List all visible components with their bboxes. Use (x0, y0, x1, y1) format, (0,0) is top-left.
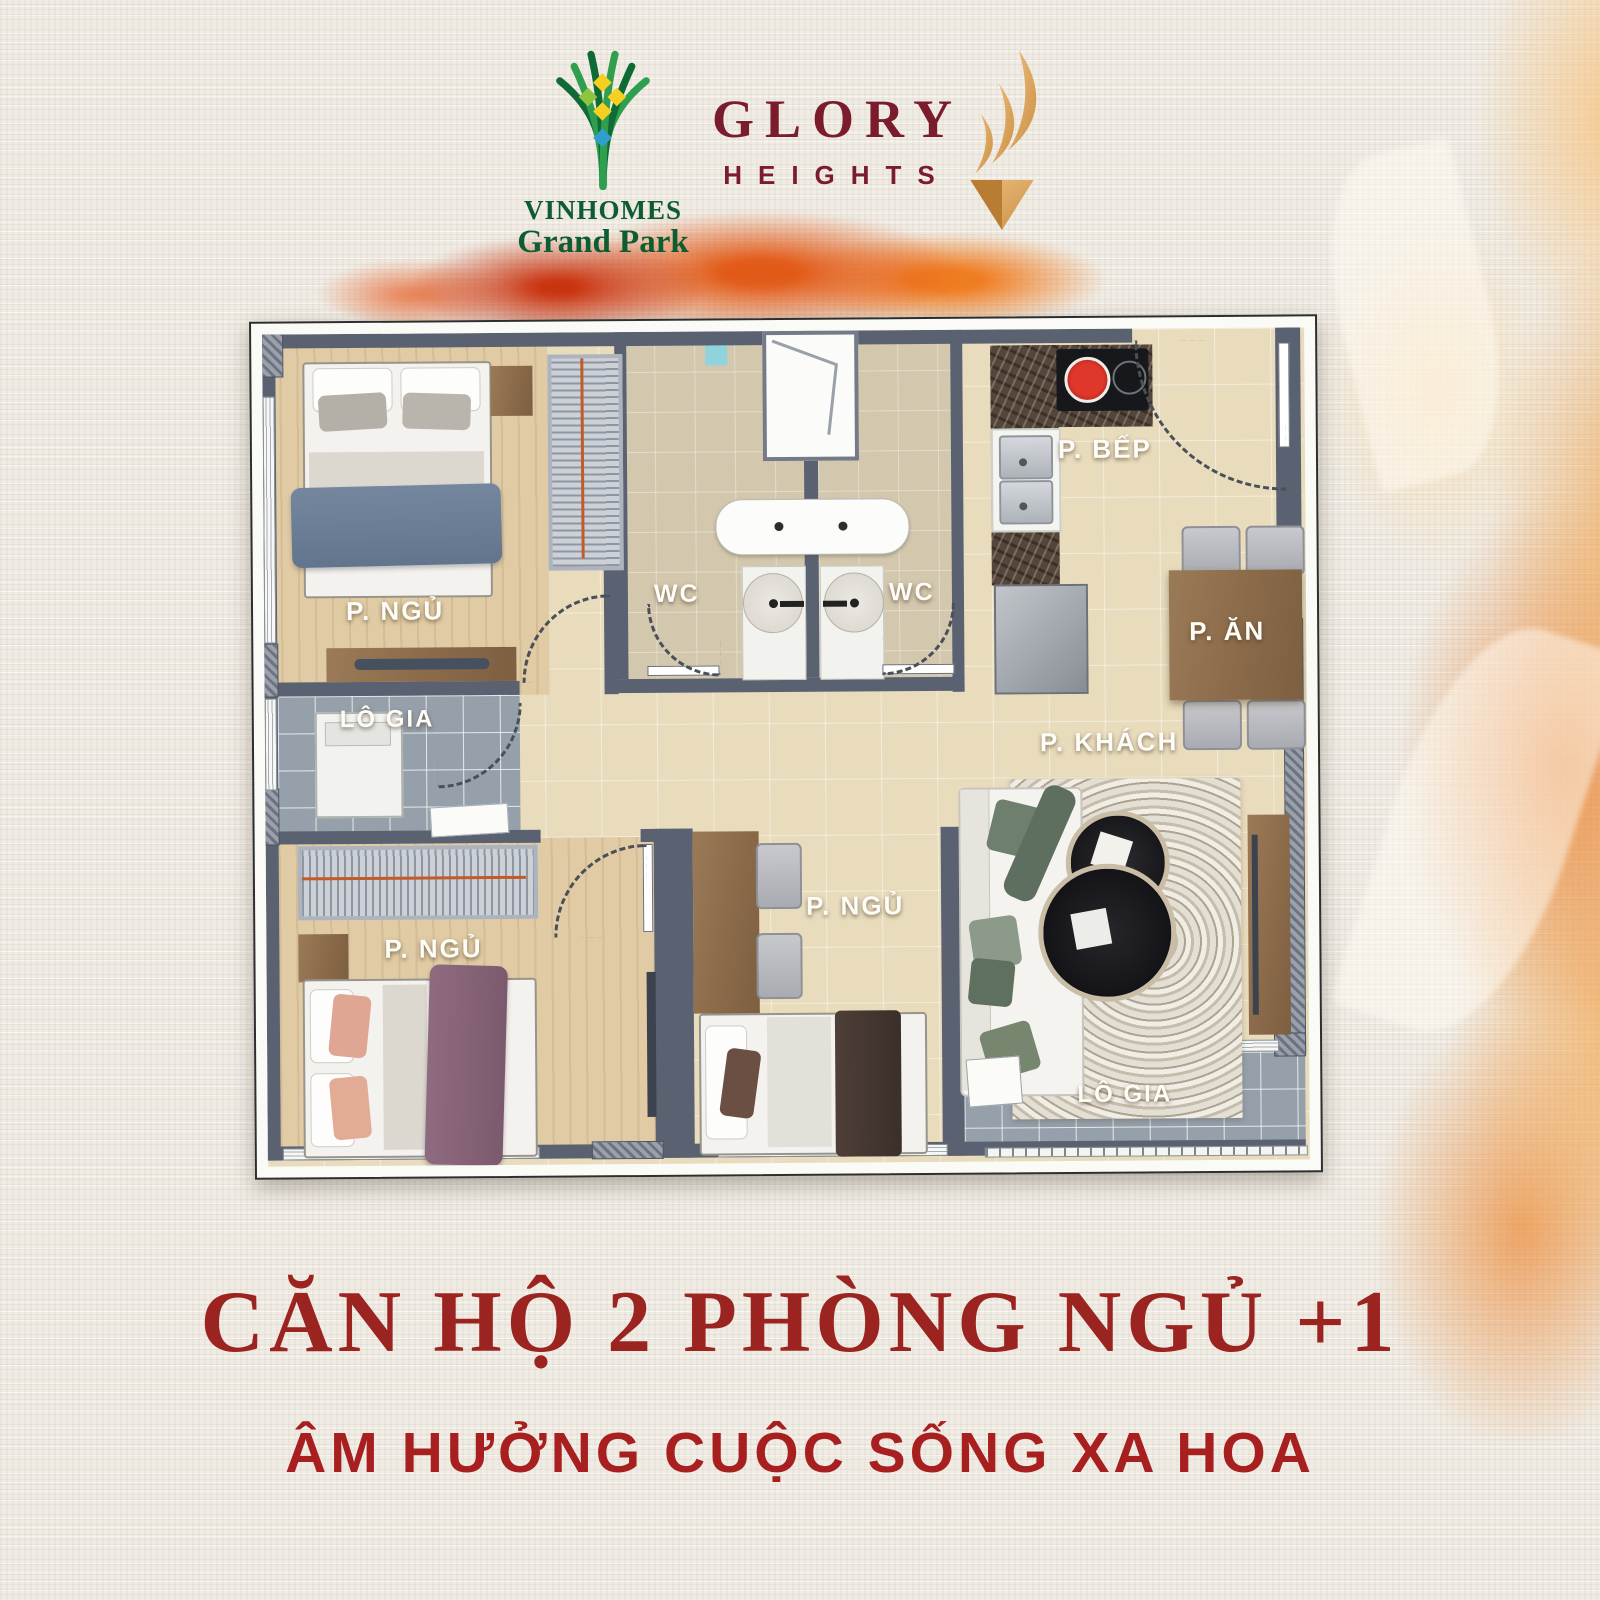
window (263, 397, 277, 644)
desk-chair (756, 933, 802, 999)
pillow (328, 993, 372, 1058)
kitchen-sink (991, 428, 1062, 532)
heights-wordmark: HEIGHTS (712, 160, 962, 191)
shower-door-icon (766, 335, 847, 450)
tv-console (1247, 814, 1291, 1034)
dining-chair (1247, 699, 1306, 749)
headline: CĂN HỘ 2 PHÒNG NGỦ +1 (0, 1272, 1600, 1373)
pillow (329, 1075, 373, 1140)
dining-chair (1245, 525, 1304, 575)
partition-wall (654, 829, 695, 1158)
pillow (318, 392, 388, 432)
nightstand (490, 366, 532, 416)
blanket (424, 964, 508, 1166)
dining-chair (1181, 526, 1240, 576)
room-label: P. NGỦ (806, 890, 904, 922)
wardrobe (547, 354, 624, 571)
floorplan: P. NGỦ WC WC P. BẾP (262, 327, 1310, 1166)
tv-panel (647, 972, 657, 1117)
blanket (835, 1010, 902, 1156)
wardrobe (298, 845, 539, 921)
pillow (402, 392, 471, 430)
loggia-rail (265, 699, 278, 791)
room-label: LÔ GIA (1077, 1080, 1172, 1109)
room-label: LÔ GIA (340, 705, 435, 734)
basin (743, 573, 803, 633)
glory-flame-icon (952, 45, 1052, 235)
shower (762, 330, 859, 461)
single-bed (699, 1012, 928, 1156)
room-label: P. BẾP (1058, 433, 1152, 465)
dresser (326, 647, 516, 682)
floorplan-frame: P. NGỦ WC WC P. BẾP (249, 314, 1323, 1179)
loggia-rail (985, 1145, 1308, 1157)
room-label: P. NGỦ (346, 595, 444, 627)
basin (824, 572, 884, 632)
coffee-table (1038, 863, 1177, 1002)
vanity-counter (715, 498, 909, 555)
desk (693, 831, 760, 1013)
vinhomes-wordmark: VINHOMES (498, 195, 708, 226)
pillow (968, 958, 1016, 1008)
entrance-door-arc (1134, 340, 1286, 492)
room-label: P. ĂN (1189, 616, 1265, 648)
vinhomes-tree-icon (543, 40, 663, 190)
nightstand (298, 934, 348, 982)
fridge (994, 584, 1089, 695)
glory-heights-logo: GLORY HEIGHTS (712, 88, 962, 191)
vinhomes-logo: VINHOMES Grand Park (498, 40, 708, 261)
blanket (290, 483, 502, 568)
room-label: P. NGỦ (384, 933, 482, 965)
subheadline: ÂM HƯỞNG CUỘC SỐNG XA HOA (0, 1420, 1600, 1486)
shoe-rack (430, 803, 510, 838)
grand-park-wordmark: Grand Park (498, 224, 708, 261)
dining-chair (1183, 700, 1242, 750)
folding-rack (966, 1056, 1024, 1108)
room-label: P. KHÁCH (1040, 726, 1179, 758)
glory-wordmark: GLORY (712, 88, 962, 150)
desk-chair (756, 843, 802, 909)
ac-vent (705, 345, 727, 365)
